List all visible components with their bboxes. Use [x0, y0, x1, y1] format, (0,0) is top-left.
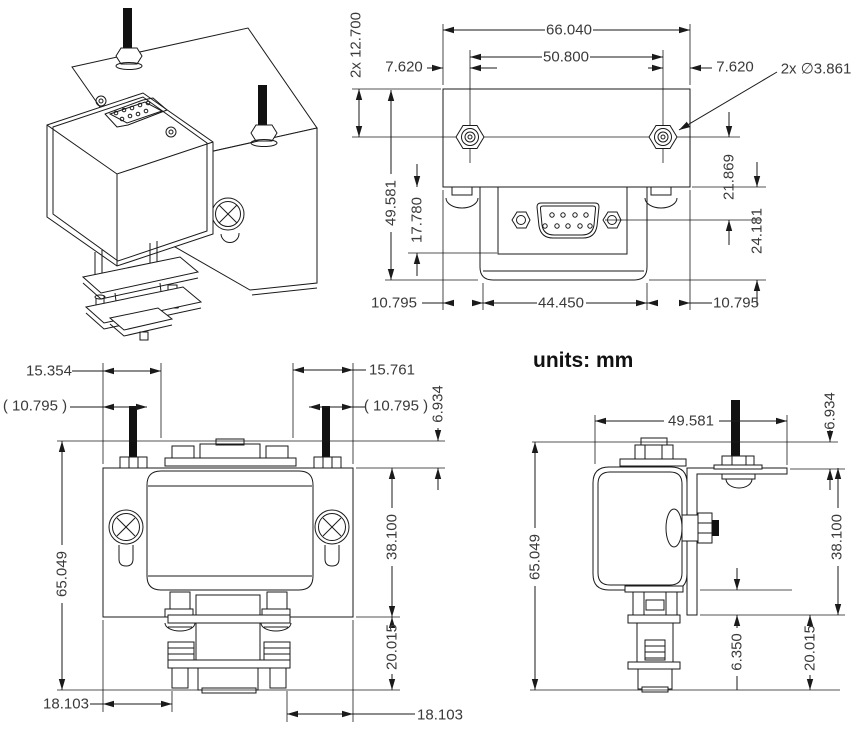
dim-side-connector-height: 20.015: [803, 625, 818, 671]
dim-connector-to-bottom: 24.181: [750, 208, 765, 254]
dim-foot-offset-right: 18.103: [417, 708, 463, 723]
dim-connector-height: 20.015: [385, 624, 400, 670]
side-view-drawing: [530, 400, 845, 692]
dim-overall-height: 65.049: [55, 551, 70, 597]
dim-front-overall-height: 49.581: [384, 180, 399, 226]
dim-offset-right: 7.620: [716, 60, 754, 75]
dim-side-connector-clearance: 6.934: [823, 392, 838, 430]
dim-hole-to-connector: 21.869: [722, 154, 737, 200]
dim-overall-width: 66.040: [546, 23, 592, 38]
dim-ref-offset-right: ( 10.795 ): [364, 399, 428, 414]
technical-drawing-page: 2x 12.700 66.040 50.800 7.620 7.620 2x ∅…: [0, 0, 862, 735]
dim-margin-left: 10.795: [371, 296, 417, 311]
dim-stud-standoff: 2x 12.700: [349, 12, 364, 78]
technical-drawing-canvas: [0, 0, 862, 735]
dim-side-overall-height: 65.049: [528, 534, 543, 580]
dim-body-to-plate-end: 6.350: [730, 633, 745, 671]
dim-plate-height: 38.100: [385, 514, 400, 560]
dim-overall-depth: 49.581: [668, 414, 714, 429]
dim-offset-left: 7.620: [385, 60, 423, 75]
dim-hole-spacing: 50.800: [543, 50, 589, 65]
dim-margin-right: 10.795: [713, 296, 759, 311]
dim-stud-offset-right: 15.761: [369, 363, 415, 378]
dim-connector-clearance: 6.934: [431, 385, 446, 423]
dim-stud-offset-left: 15.354: [26, 364, 72, 379]
dim-connector-drop: 17.780: [410, 197, 425, 243]
dim-ref-offset-left: ( 10.795 ): [3, 399, 67, 414]
units-note: units: mm: [533, 349, 633, 373]
dim-foot-offset-left: 18.103: [43, 697, 89, 712]
isometric-view-drawing: [47, 8, 317, 340]
dim-side-plate-height: 38.100: [830, 514, 845, 560]
dim-body-width: 44.450: [538, 296, 584, 311]
dim-hole-diameter: 2x ∅3.861: [781, 62, 852, 77]
